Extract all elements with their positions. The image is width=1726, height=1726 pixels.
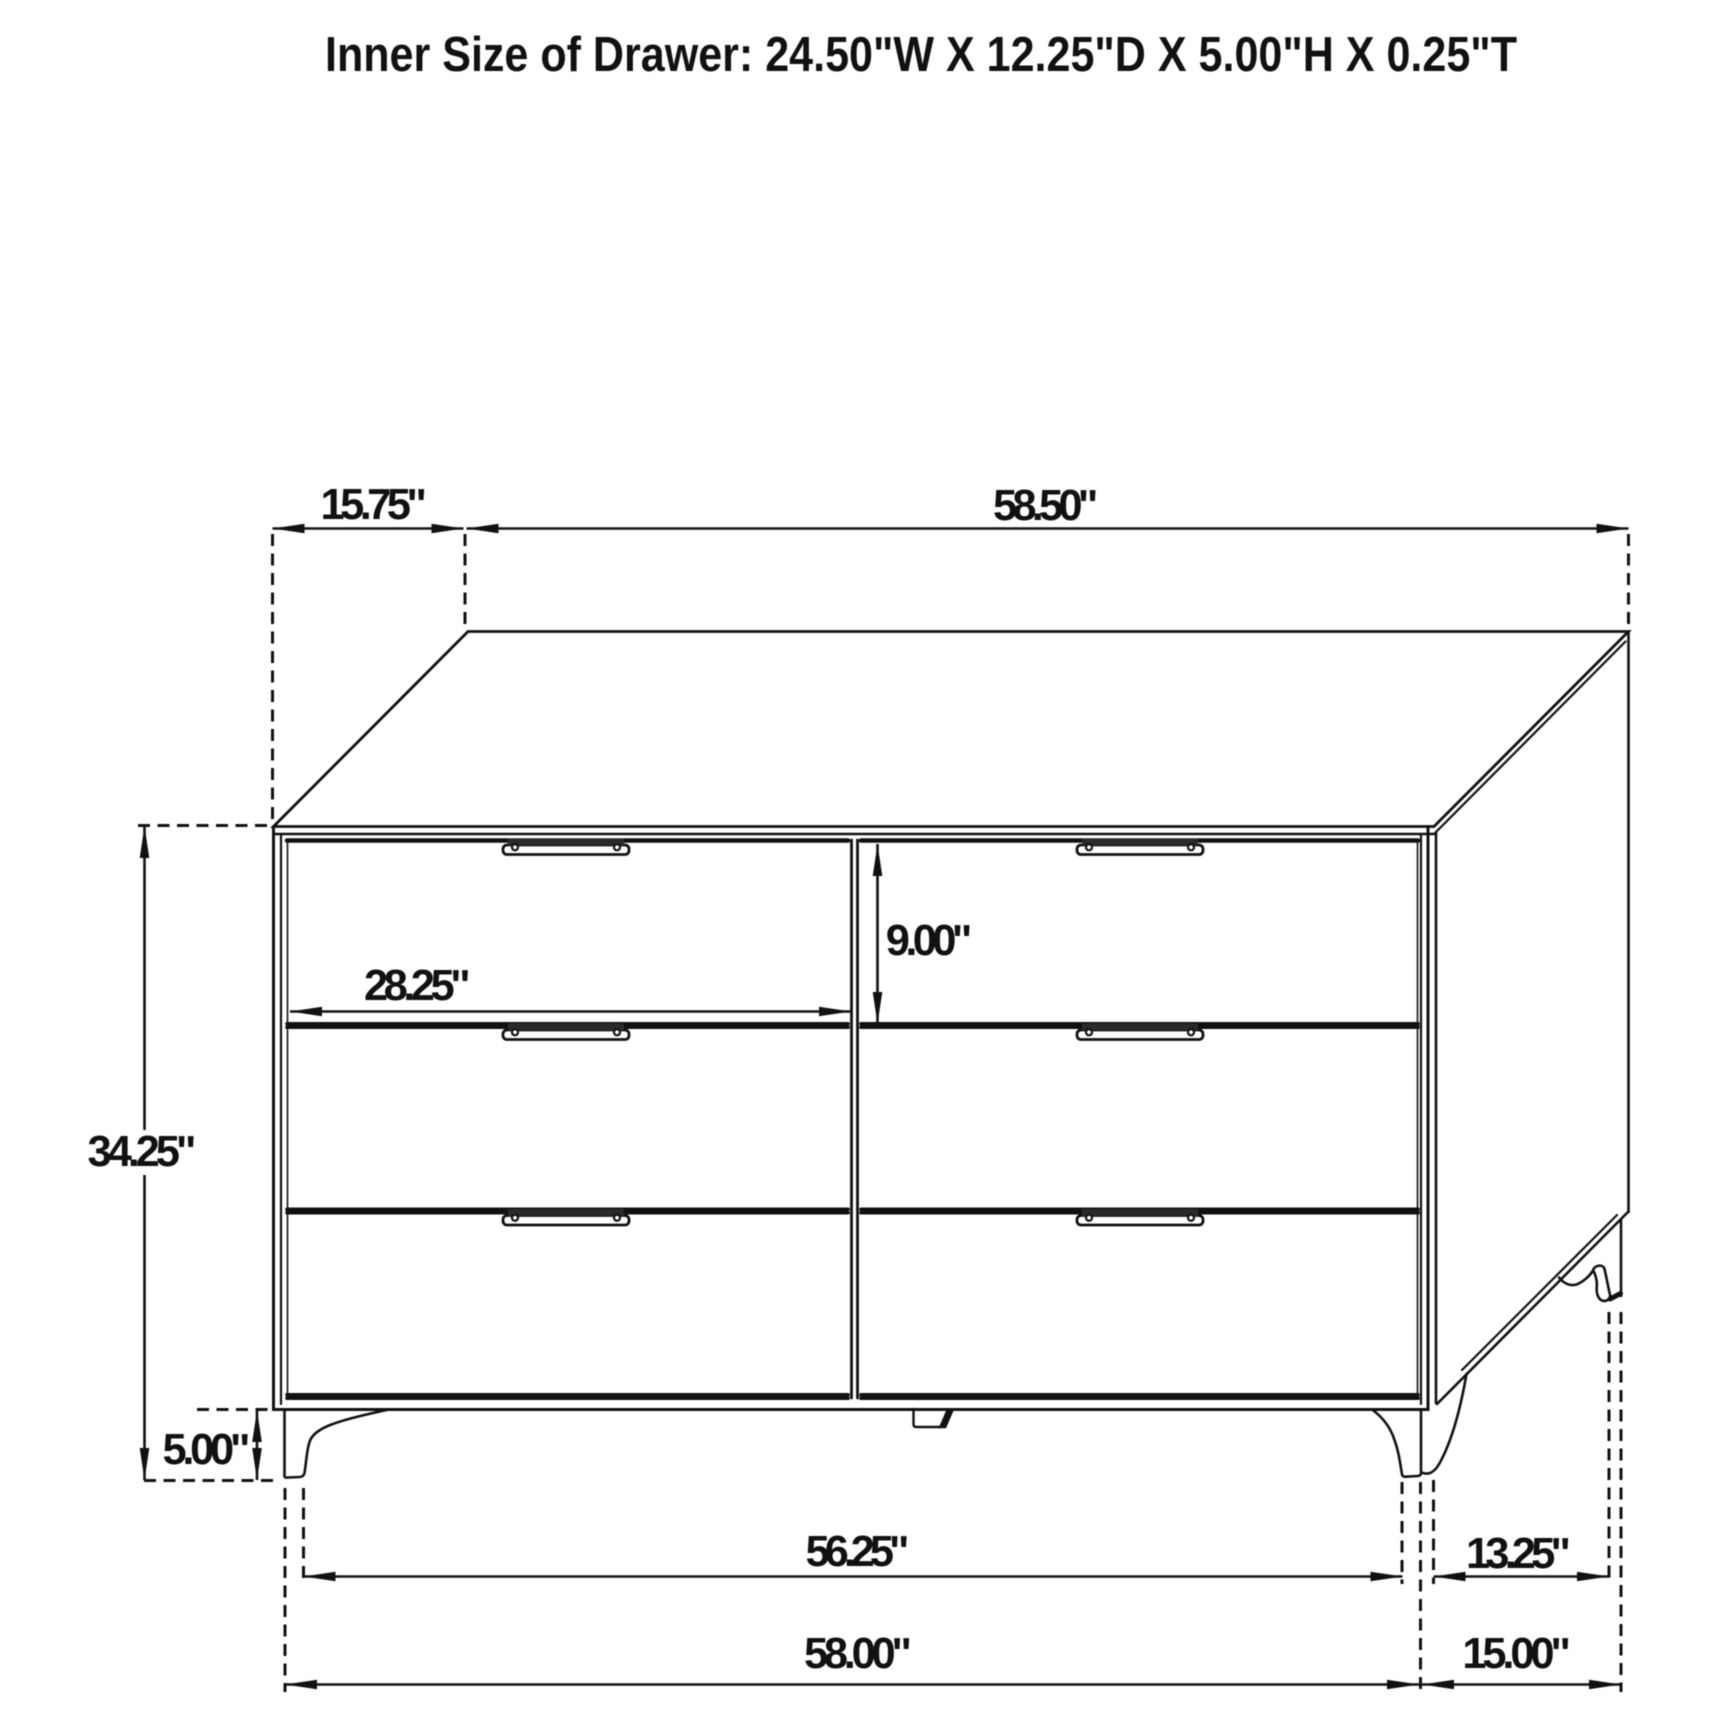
svg-text:5.00": 5.00" (163, 1426, 251, 1474)
svg-text:15.75": 15.75" (321, 481, 428, 529)
svg-text:13.25": 13.25" (1466, 1530, 1571, 1578)
svg-text:58.00": 58.00" (804, 1630, 912, 1678)
svg-text:Inner Size of Drawer: 24.50"W: Inner Size of Drawer: 24.50"W X 12.25"D … (325, 28, 1517, 82)
svg-text:15.00": 15.00" (1462, 1630, 1571, 1678)
svg-text:58.50": 58.50" (993, 482, 1098, 530)
svg-text:34.25": 34.25" (88, 1128, 197, 1176)
svg-text:56.25": 56.25" (806, 1528, 910, 1576)
svg-text:9.00": 9.00" (886, 917, 973, 965)
svg-text:28.25": 28.25" (364, 962, 471, 1010)
